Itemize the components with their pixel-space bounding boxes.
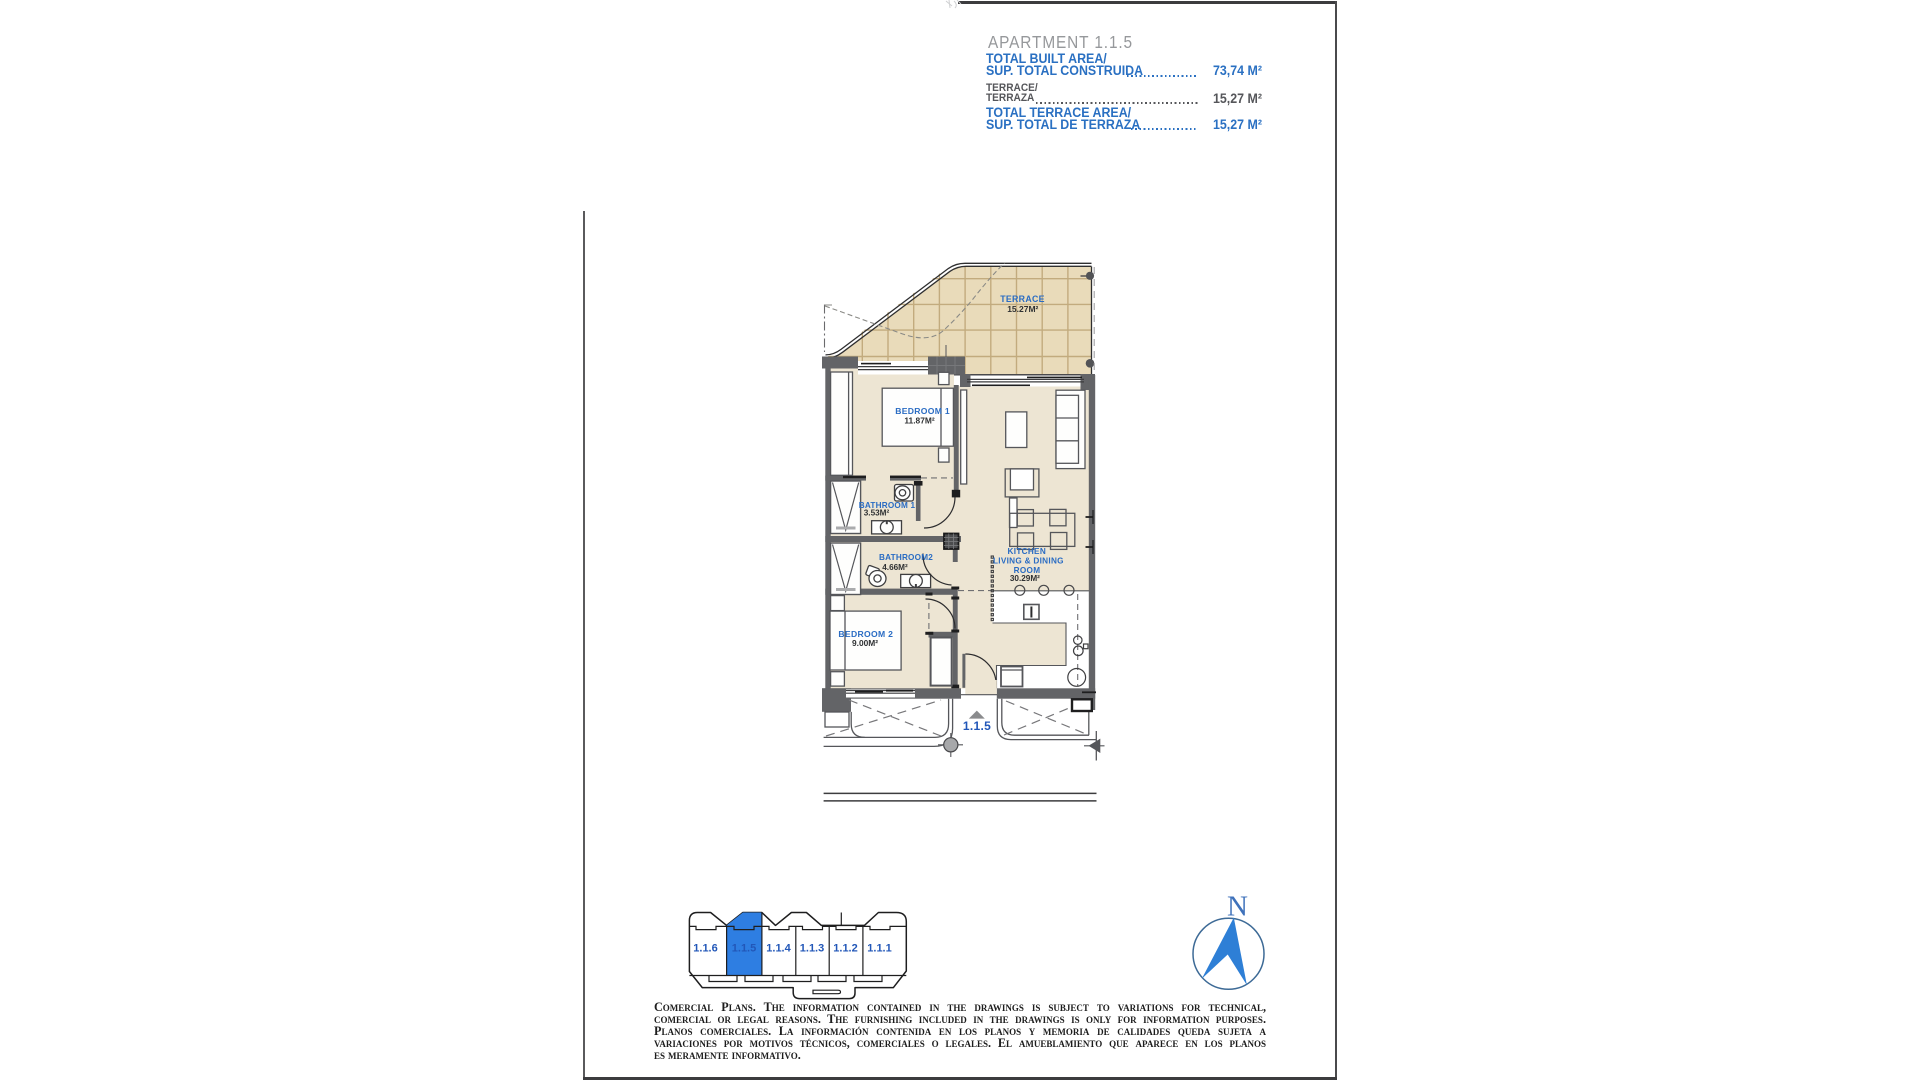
svg-text:30.29M²: 30.29M² bbox=[1010, 574, 1040, 583]
svg-text:11.87M²: 11.87M² bbox=[904, 416, 934, 426]
svg-text:TERRACE: TERRACE bbox=[1000, 294, 1045, 304]
svg-text:LIVING & DINING: LIVING & DINING bbox=[993, 557, 1064, 566]
svg-text:1.1.1: 1.1.1 bbox=[867, 943, 891, 955]
svg-text:1.1.5: 1.1.5 bbox=[963, 719, 991, 733]
svg-text:KITCHEN: KITCHEN bbox=[1008, 547, 1047, 556]
svg-text:1.1.6: 1.1.6 bbox=[693, 943, 717, 955]
svg-text:1.1.4: 1.1.4 bbox=[766, 943, 791, 955]
svg-text:15.27M²: 15.27M² bbox=[1007, 304, 1038, 314]
svg-text:1.1.5: 1.1.5 bbox=[732, 943, 756, 955]
svg-text:9.00M²: 9.00M² bbox=[852, 638, 878, 648]
svg-text:1.1.3: 1.1.3 bbox=[800, 943, 824, 955]
svg-text:4.66M²: 4.66M² bbox=[882, 563, 908, 572]
svg-text:1.1.2: 1.1.2 bbox=[833, 943, 857, 955]
svg-text:3.53M²: 3.53M² bbox=[864, 509, 890, 518]
svg-text:BATHROOM2: BATHROOM2 bbox=[879, 553, 933, 562]
